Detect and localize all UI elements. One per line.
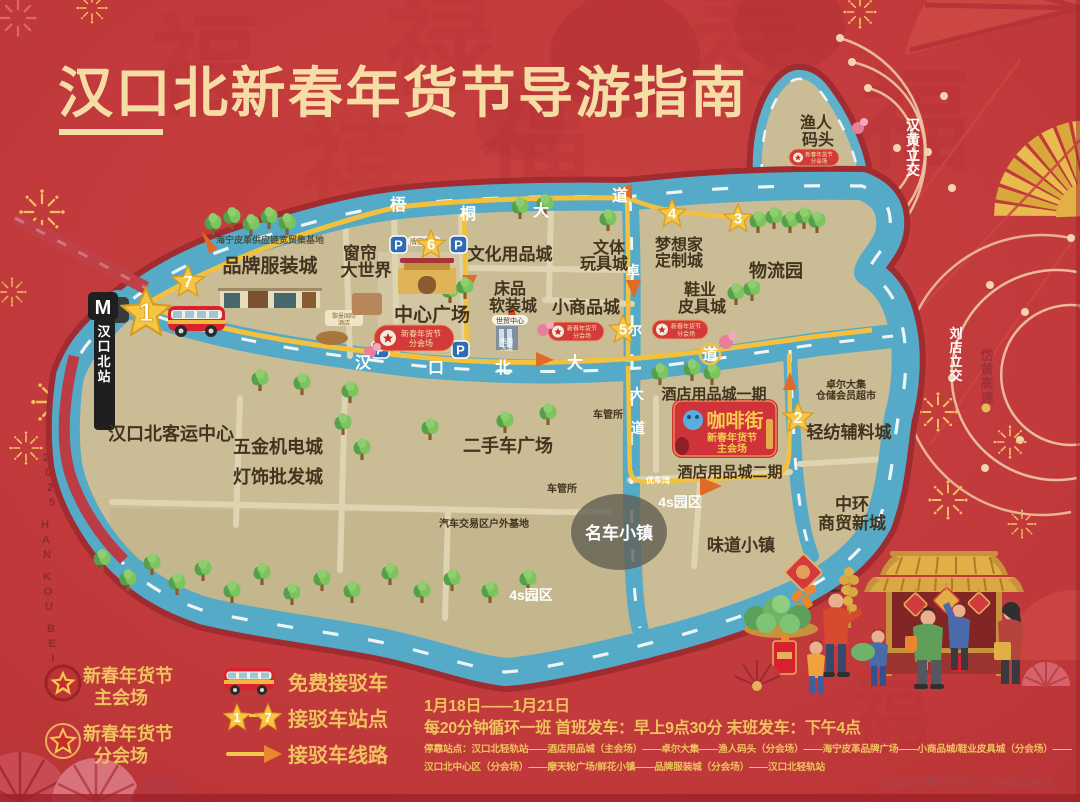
svg-text:新春年货节: 新春年货节 [83,723,173,744]
svg-text:大厦: 大厦 [501,343,515,352]
svg-text:文体: 文体 [593,238,626,257]
svg-text:道: 道 [631,420,645,436]
svg-text:商贸新城: 商贸新城 [818,513,886,533]
svg-text:4: 4 [668,206,677,223]
svg-text:新春年货节: 新春年货节 [805,151,833,159]
svg-text:汉: 汉 [355,353,372,372]
svg-text:停靠站点：汉口北轻轨站——酒店用品城（主会场）——卓尔大集—: 停靠站点：汉口北轻轨站——酒店用品城（主会场）——卓尔大集——渔人码头（分会场）… [424,742,1072,755]
svg-text:接驳车站点: 接驳车站点 [288,707,388,731]
svg-text:1: 1 [233,710,240,725]
svg-text:分会场: 分会场 [409,338,433,348]
svg-text:世贸中心: 世贸中心 [496,316,524,325]
svg-text:码头: 码头 [802,131,834,149]
svg-text:卓尔大集: 卓尔大集 [826,378,867,391]
svg-text:北: 北 [495,359,511,377]
svg-text:咖啡街: 咖啡街 [706,409,763,432]
svg-text:4s园区: 4s园区 [658,494,702,510]
svg-text:汉口北中心区（分会场）——摩天轮广场/鲜花小镇——品牌服装城: 汉口北中心区（分会场）——摩天轮广场/鲜花小镇——品牌服装城（分会场）——汉口北… [424,760,825,773]
svg-text:大: 大 [567,353,583,372]
svg-text:品牌服装城: 品牌服装城 [222,254,317,277]
svg-text:分会场: 分会场 [677,330,695,338]
svg-text:物流园: 物流园 [749,260,803,281]
svg-text:仓储会员超市: 仓储会员超市 [815,389,876,402]
svg-text:灯饰批发城: 灯饰批发城 [233,466,323,487]
svg-text:梧: 梧 [390,195,406,214]
svg-text:卓: 卓 [626,263,640,279]
svg-text:软装城: 软装城 [489,296,537,315]
svg-text:汉黄立交: 汉黄立交 [906,117,921,178]
svg-text:五金机电城: 五金机电城 [233,436,323,457]
svg-text:二手车广场: 二手车广场 [463,435,553,456]
svg-text:汉口北新春年货节导游指南: 汉口北新春年货节导游指南 [58,62,748,124]
svg-text:P: P [454,238,463,253]
svg-text:3: 3 [734,211,742,228]
svg-text:优车湾: 优车湾 [646,475,670,485]
svg-text:P: P [456,343,465,358]
svg-text:新春年货节: 新春年货节 [83,665,173,686]
svg-text:大: 大 [533,201,549,220]
svg-text:M: M [95,297,112,319]
svg-text:分会场: 分会场 [573,332,591,340]
svg-text:4s园区: 4s园区 [509,587,553,603]
svg-text:道: 道 [612,186,628,205]
svg-text:6: 6 [427,237,435,254]
svg-text:梦想家: 梦想家 [655,235,704,254]
svg-text:1月18日——1月21日: 1月18日——1月21日 [424,697,570,715]
svg-text:7: 7 [264,710,271,725]
svg-text:海宁皮革供应链宽贸集基地: 海宁皮革供应链宽贸集基地 [216,234,324,245]
svg-text:分会场: 分会场 [94,745,148,766]
svg-text:免费接驳车: 免费接驳车 [288,671,388,695]
svg-text:酒店用品城二期: 酒店用品城二期 [677,463,782,481]
svg-text:玩具城: 玩具城 [580,255,628,273]
svg-text:酒店用品城一期: 酒店用品城一期 [661,385,766,403]
svg-text:轻纺辅料城: 轻纺辅料城 [807,422,892,442]
svg-text:中心广场: 中心广场 [394,303,470,326]
svg-text:2: 2 [794,410,803,427]
svg-text:桐: 桐 [460,204,476,223]
svg-text:汉口北客运中心: 汉口北客运中心 [108,423,234,444]
svg-text:分会场: 分会场 [811,157,828,165]
svg-text:文化用品城: 文化用品城 [468,244,553,264]
svg-text:皮具城: 皮具城 [677,297,726,316]
svg-text:主会场: 主会场 [717,442,747,455]
svg-text:新春年货节: 新春年货节 [567,325,597,333]
svg-text:尔: 尔 [628,322,642,338]
svg-text:主会场: 主会场 [94,687,148,708]
svg-text:酒店: 酒店 [338,319,350,327]
svg-text:味道小镇: 味道小镇 [707,535,775,555]
svg-text:新春年货节: 新春年货节 [401,329,441,339]
svg-text:新春年货节: 新春年货节 [707,431,757,444]
svg-text:5: 5 [619,322,627,339]
svg-text:车管所: 车管所 [547,482,577,495]
svg-text:车管所: 车管所 [593,408,623,421]
svg-text:小商品城: 小商品城 [552,297,620,317]
svg-text:岱黄高速: 岱黄高速 [979,348,993,405]
svg-text:P: P [394,238,403,253]
svg-text:每20分钟循环一班 首班发车：早上9点30分 末班发车：: 每20分钟循环一班 首班发车：早上9点30分 末班发车：下午4点 [424,718,861,737]
svg-text:名车小镇: 名车小镇 [585,523,653,543]
svg-text:1: 1 [139,297,153,327]
svg-text:刘店立交: 刘店立交 [949,326,962,383]
svg-text:活动最终解释权归汉口北电商城所有: 活动最终解释权归汉口北电商城所有 [884,776,1052,789]
svg-text:新春年货节: 新春年货节 [671,323,701,331]
svg-text:大: 大 [630,386,644,402]
svg-text:接驳车线路: 接驳车线路 [288,743,389,767]
svg-text:汉口北站: 汉口北站 [97,324,111,384]
svg-text:大世界: 大世界 [341,260,392,280]
svg-text:定制城: 定制城 [654,251,703,270]
svg-text:中环: 中环 [835,494,869,514]
svg-text:7: 7 [184,274,193,291]
svg-text:鞋业: 鞋业 [684,280,716,299]
svg-text:渔人: 渔人 [800,113,833,132]
svg-text:口: 口 [428,360,444,377]
svg-text:床品: 床品 [494,279,526,298]
svg-text:窗帘: 窗帘 [343,243,377,263]
svg-text:电商: 电商 [501,336,515,345]
svg-text:汽车交易区户外基地: 汽车交易区户外基地 [439,517,529,530]
